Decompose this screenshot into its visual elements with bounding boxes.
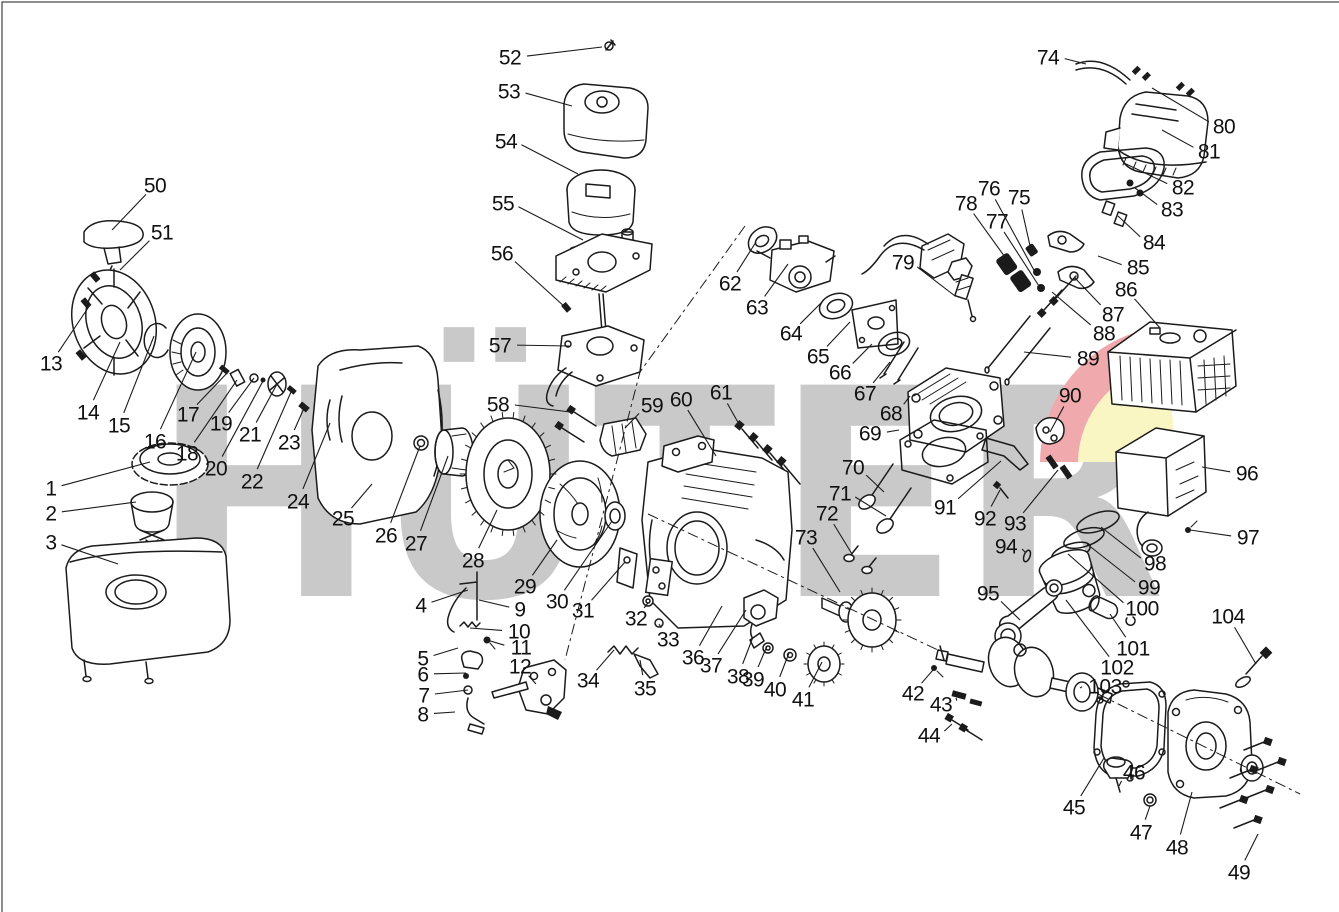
valve-cover-81 bbox=[1104, 92, 1208, 178]
part-label-99: 99 bbox=[1138, 577, 1160, 600]
part-label-88: 88 bbox=[1093, 323, 1115, 346]
part-label-69: 69 bbox=[859, 423, 881, 446]
bolt-104 bbox=[1234, 646, 1272, 689]
part-label-92: 92 bbox=[974, 508, 996, 531]
part-label-3: 3 bbox=[45, 532, 56, 555]
part-label-53: 53 bbox=[498, 81, 520, 104]
leader-line-47 bbox=[1145, 806, 1150, 820]
part-label-82: 82 bbox=[1172, 177, 1194, 200]
part-label-72: 72 bbox=[816, 503, 838, 526]
gear-tooth bbox=[832, 680, 834, 683]
part-label-68: 68 bbox=[880, 403, 902, 426]
gear-tooth bbox=[807, 673, 810, 675]
rocker-pivots bbox=[1102, 201, 1127, 226]
part-label-23: 23 bbox=[278, 432, 300, 455]
part-label-55: 55 bbox=[492, 193, 514, 216]
fan-cover-25 bbox=[312, 346, 442, 524]
part-label-43: 43 bbox=[930, 694, 952, 717]
part-label-80: 80 bbox=[1213, 116, 1235, 139]
air-filter-base-55 bbox=[556, 229, 652, 292]
leader-line-54 bbox=[521, 145, 578, 174]
part-label-22: 22 bbox=[241, 471, 263, 494]
leader-line-43 bbox=[956, 698, 957, 701]
part-label-77: 77 bbox=[986, 211, 1008, 234]
part-label-31: 31 bbox=[572, 600, 594, 623]
screws-80 bbox=[1132, 66, 1195, 97]
nut-26 bbox=[414, 436, 428, 450]
part-label-25: 25 bbox=[332, 508, 354, 531]
leader-line-62 bbox=[737, 242, 756, 272]
part-label-54: 54 bbox=[495, 131, 518, 154]
part-label-63: 63 bbox=[746, 297, 768, 320]
part-label-104: 104 bbox=[1211, 606, 1245, 629]
crankcase-cover-48 bbox=[1168, 690, 1252, 798]
part-label-1: 1 bbox=[45, 478, 56, 501]
flywheel-28 bbox=[466, 418, 550, 530]
part-label-58: 58 bbox=[487, 394, 509, 417]
part-label-75: 75 bbox=[1008, 187, 1030, 210]
part-label-2: 2 bbox=[45, 503, 56, 526]
part-label-94: 94 bbox=[995, 536, 1018, 559]
leader-line-46 bbox=[1119, 781, 1122, 786]
spark-plug bbox=[948, 258, 976, 322]
part-label-16: 16 bbox=[144, 431, 166, 454]
part-label-37: 37 bbox=[700, 655, 722, 678]
part-label-32: 32 bbox=[625, 608, 647, 631]
part-label-51: 51 bbox=[151, 222, 173, 245]
part-label-50: 50 bbox=[144, 175, 166, 198]
leader-line-42 bbox=[922, 670, 933, 683]
oil-seal-47 bbox=[1144, 794, 1156, 806]
part-label-18: 18 bbox=[176, 443, 198, 466]
part-label-85: 85 bbox=[1127, 257, 1149, 280]
exploded-parts-diagram: HÜTER bbox=[0, 0, 1339, 912]
insulator-65 bbox=[852, 300, 898, 348]
part-label-30: 30 bbox=[546, 591, 568, 614]
stud-56 bbox=[561, 294, 606, 332]
part-label-17: 17 bbox=[177, 404, 199, 427]
leader-line-8 bbox=[434, 712, 455, 713]
part-label-70: 70 bbox=[842, 457, 864, 480]
part-label-95: 95 bbox=[977, 583, 999, 606]
part-label-41: 41 bbox=[792, 689, 814, 712]
gear-tooth bbox=[814, 680, 816, 683]
breather-plate bbox=[646, 559, 673, 596]
gear-tooth bbox=[838, 673, 841, 675]
part-label-90: 90 bbox=[1059, 385, 1081, 408]
part-label-21: 21 bbox=[239, 424, 261, 447]
part-label-45: 45 bbox=[1063, 797, 1085, 820]
part-label-74: 74 bbox=[1037, 47, 1060, 70]
part-label-83: 83 bbox=[1161, 199, 1183, 222]
part-label-27: 27 bbox=[405, 533, 427, 556]
part-label-61: 61 bbox=[710, 382, 732, 405]
diagram-canvas: HÜTER bbox=[0, 0, 1339, 912]
leader-line-6 bbox=[434, 673, 466, 674]
part-label-29: 29 bbox=[514, 576, 536, 599]
starter-pulley-16 bbox=[170, 314, 226, 390]
air-filter-element-54 bbox=[567, 170, 635, 235]
part-label-65: 65 bbox=[807, 346, 829, 369]
part-label-73: 73 bbox=[795, 527, 817, 550]
part-label-79: 79 bbox=[892, 252, 914, 275]
starter-handle-50 bbox=[84, 221, 143, 264]
leader-line-96 bbox=[1202, 467, 1230, 472]
part-label-59: 59 bbox=[641, 395, 663, 418]
part-label-64: 64 bbox=[780, 323, 803, 346]
rocker-arms-84-85 bbox=[1048, 231, 1094, 288]
part-label-56: 56 bbox=[491, 243, 513, 266]
leader-line-48 bbox=[1180, 792, 1192, 834]
part-label-98: 98 bbox=[1144, 553, 1166, 576]
leader-line-104 bbox=[1235, 627, 1256, 664]
part-label-44: 44 bbox=[918, 725, 941, 748]
part-label-8: 8 bbox=[417, 704, 428, 727]
part-label-13: 13 bbox=[40, 353, 62, 376]
bearing-30 bbox=[605, 502, 625, 530]
part-label-34: 34 bbox=[577, 670, 600, 693]
leader-line-45 bbox=[1081, 758, 1104, 796]
part-label-89: 89 bbox=[1077, 348, 1099, 371]
part-label-103: 103 bbox=[1088, 676, 1122, 699]
breather-tube-74 bbox=[1076, 61, 1130, 84]
leader-line-88 bbox=[1052, 292, 1091, 325]
leader-line-2 bbox=[62, 502, 136, 512]
leader-line-97 bbox=[1190, 530, 1231, 536]
leader-line-75 bbox=[1022, 210, 1031, 250]
part-label-33: 33 bbox=[657, 629, 679, 652]
leader-line-7 bbox=[435, 690, 468, 694]
part-label-40: 40 bbox=[764, 679, 786, 702]
part-label-47: 47 bbox=[1130, 822, 1152, 845]
part-label-26: 26 bbox=[375, 525, 397, 548]
part-label-60: 60 bbox=[670, 389, 692, 412]
part-label-66: 66 bbox=[829, 362, 851, 385]
part-label-42: 42 bbox=[902, 683, 924, 706]
part-label-28: 28 bbox=[462, 550, 484, 573]
leader-line-52 bbox=[527, 47, 602, 56]
part-label-15: 15 bbox=[108, 415, 130, 438]
leader-line-64 bbox=[800, 302, 822, 324]
part-label-39: 39 bbox=[742, 669, 764, 692]
leader-line-49 bbox=[1245, 834, 1258, 860]
part-label-93: 93 bbox=[1004, 513, 1026, 536]
part-label-24: 24 bbox=[287, 491, 310, 514]
part-label-67: 67 bbox=[854, 383, 876, 406]
part-label-4: 4 bbox=[415, 595, 427, 618]
part-label-46: 46 bbox=[1123, 762, 1145, 785]
valve-springs-75-78 bbox=[995, 243, 1045, 293]
part-label-35: 35 bbox=[634, 678, 656, 701]
part-label-97: 97 bbox=[1237, 527, 1259, 550]
part-label-14: 14 bbox=[77, 402, 100, 425]
part-label-84: 84 bbox=[1143, 232, 1166, 255]
gasket-64 bbox=[816, 289, 856, 323]
leader-line-44 bbox=[944, 724, 952, 731]
part-label-49: 49 bbox=[1228, 862, 1250, 885]
part-label-48: 48 bbox=[1166, 837, 1188, 860]
part-label-6: 6 bbox=[417, 664, 428, 687]
part-label-20: 20 bbox=[205, 458, 227, 481]
part-label-12: 12 bbox=[509, 656, 531, 679]
part-label-86: 86 bbox=[1115, 279, 1137, 302]
part-label-19: 19 bbox=[210, 413, 232, 436]
part-label-91: 91 bbox=[934, 497, 956, 520]
air-filter-cover-53 bbox=[564, 84, 648, 158]
part-label-57: 57 bbox=[489, 335, 511, 358]
guide-bolts-87-88 bbox=[1037, 276, 1076, 318]
leader-line-85 bbox=[1098, 256, 1122, 265]
part-label-62: 62 bbox=[719, 273, 741, 296]
governor-gear-41 bbox=[808, 646, 840, 682]
part-label-81: 81 bbox=[1198, 141, 1220, 164]
part-label-100: 100 bbox=[1125, 598, 1159, 621]
part-label-52: 52 bbox=[499, 47, 521, 70]
air-filter-screw-52 bbox=[605, 40, 615, 50]
part-label-76: 76 bbox=[978, 178, 1000, 201]
carburetor-63 bbox=[757, 236, 835, 292]
part-label-9: 9 bbox=[514, 599, 525, 622]
part-label-78: 78 bbox=[955, 193, 977, 216]
part-label-96: 96 bbox=[1236, 463, 1258, 486]
